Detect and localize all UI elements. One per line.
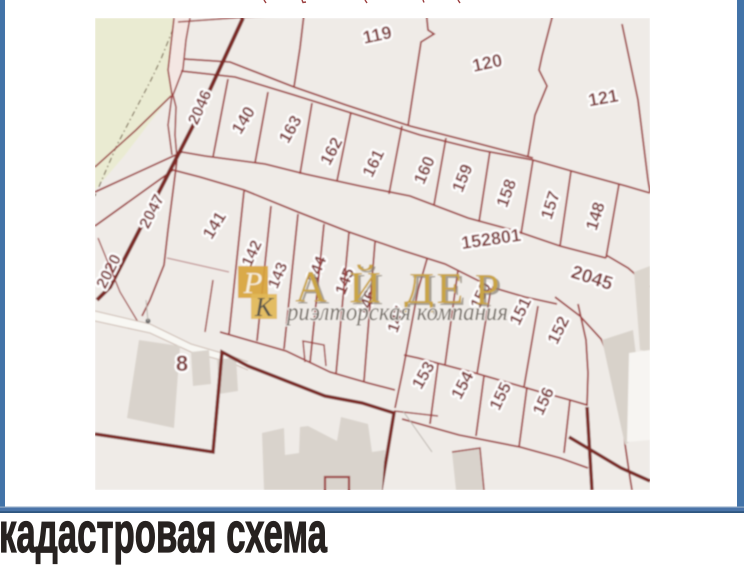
svg-text:К: К [254, 292, 275, 322]
svg-text:риэлторская компания: риэлторская компания [285, 299, 508, 326]
svg-text:8: 8 [176, 351, 188, 376]
